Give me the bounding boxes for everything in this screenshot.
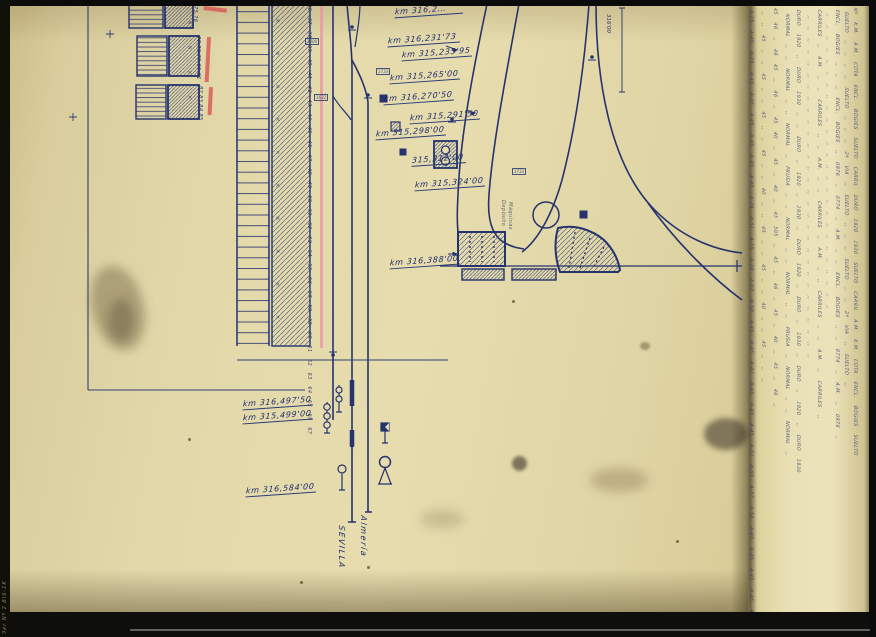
boxed-label: 1622 (314, 94, 328, 101)
rail-table-line: Nº K.M. A.M. COTA ENCL. BOGIES SUELTO CA… (852, 7, 858, 456)
platform-edge-numbers: 36 37 38 39 40 41 42 43 44 45 46 47 48 4… (306, 4, 312, 434)
red-check-marks (204, 6, 227, 115)
direction-label-sevilla: SEVILLA (337, 525, 346, 570)
pink-line (320, 0, 323, 348)
rail-table-line: 45 46 ,, 46 45 ,, 46 ,, 45 40 ,, 45 ,, 4… (772, 7, 778, 408)
rail-table-line: ,, ,, ,, ,, ,, ,, ,, ,, ,, ,, ,, ,, ,, ,… (806, 15, 812, 358)
photo-border-right (869, 0, 876, 637)
signals (324, 385, 392, 490)
depot-label-line2: Máquinas (507, 202, 513, 230)
boxed-label: 1733 (512, 168, 526, 175)
rail-table-line: SUELTO ,, ,, ,, ,, SUELTO ,, ,, ,, 2ª VI… (843, 11, 849, 387)
point-markers (329, 26, 596, 357)
photo-border-bottom (0, 612, 876, 637)
km-label: 315,312'00 (412, 152, 467, 167)
building-numbers: 82,83,84,85 (197, 86, 203, 121)
rail-table-line: ,, ,, ,, ,, ,, ,, ,, ,, ,, ,, ,, ,, ,, ,… (825, 13, 831, 309)
depot-label-line1: Depósito (500, 200, 506, 226)
photo-border-left (0, 0, 10, 637)
boxed-label: 1733 (376, 68, 390, 75)
locomotive-depot (458, 202, 620, 280)
platform-cross-marks: × × × × × × × × × × (274, 18, 281, 319)
rail-table-line: CARRILES ,, A.M. ,, ,, CARRILES ,, ,, A.… (816, 9, 822, 419)
building-numbers: 75,76 (192, 6, 198, 22)
rail-table-line: ENCL. BOGIES ,, ,, ,, ENCL. BOGIES ,, 09… (834, 9, 840, 440)
rail-table-line: NORMAL ,, ,, NORMAL ,, ,, NORMAL ,, PRUS… (784, 13, 790, 456)
rail-table-line: ,, ,, 45 ,, ,, 45 ,, ,, 45 ,, ,, 45 ,, ,… (760, 11, 766, 383)
margin-note: 3er Nº 2 BIS-1K (2, 580, 8, 634)
rail-table-line: A-25 A-45 A-45 A-45 A-45 A-45 A-45 A-45 … (748, 9, 754, 622)
building-numbers: 77,78,79,80,81 (195, 36, 201, 80)
scanned-track-plan: km 316,2… km 316,231'73 km 315,235'95 km… (0, 0, 876, 637)
table-edge-line (130, 629, 870, 631)
measure-label: 316'00 (605, 14, 611, 33)
rail-table-line: DURO 1920 ,, DURO 1930 ,, ,, DURO ,, 192… (795, 9, 801, 473)
yard-cross-marks: × × × × (186, 20, 193, 100)
direction-label-almeria: Almería (359, 515, 368, 558)
photo-border-top (0, 0, 876, 6)
